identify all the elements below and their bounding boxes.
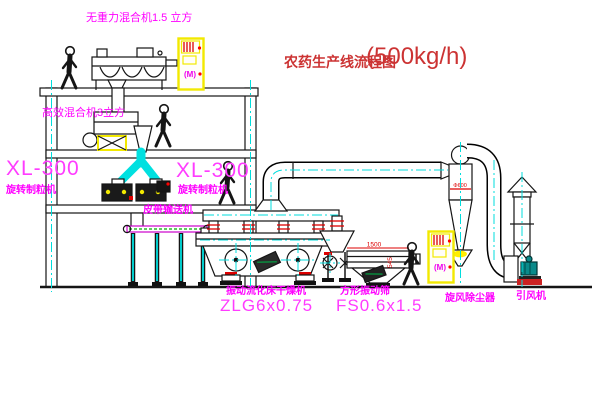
exhaust-duct [255,162,451,211]
flow-diagram: (M) [0,0,600,403]
granulator-right-machine [136,179,170,201]
label-dryer-model: ZLG6x0.75 [220,297,313,314]
label-draft-fan: 引风机 [516,292,546,302]
label-screen-model: FS0.6x1.5 [336,297,423,314]
fluid-bed-dryer-machine [196,210,339,285]
vibrating-screen-machine: 1500 545 [320,216,420,287]
label-granulator-right-model: XL-300 [176,160,250,181]
gravity-mixer-machine [92,48,177,112]
label-high-efficiency-mixer: 高效混合机3立方 [42,108,125,119]
cyclone-to-fan-pipe [467,151,514,272]
worker-figure-second-floor [156,105,170,146]
label-gravity-mixer: 无重力混合机1.5 立方 [86,13,192,24]
draft-fan-machine [504,256,542,285]
worker-figure-top-floor [62,47,76,88]
screen-length-dimension: 1500 [367,242,382,249]
granulator-discharge-duct [131,213,143,227]
screen-height-dimension: 545 [387,257,394,268]
label-granulator-left-model: XL-300 [6,158,80,179]
label-granulator-left-name: 旋转制粒机 [6,186,56,196]
label-granulator-right-name: 旋转制粒机 [178,186,228,196]
diagram-title-capacity: (500kg/h) [366,45,467,69]
label-belt-conveyor: 皮带输送机 [143,206,193,216]
granulator-left-machine [102,179,133,201]
control-cabinet-ground [429,232,454,283]
label-cyclone: 旋风除尘器 [445,294,495,304]
control-cabinet-top [179,39,204,90]
